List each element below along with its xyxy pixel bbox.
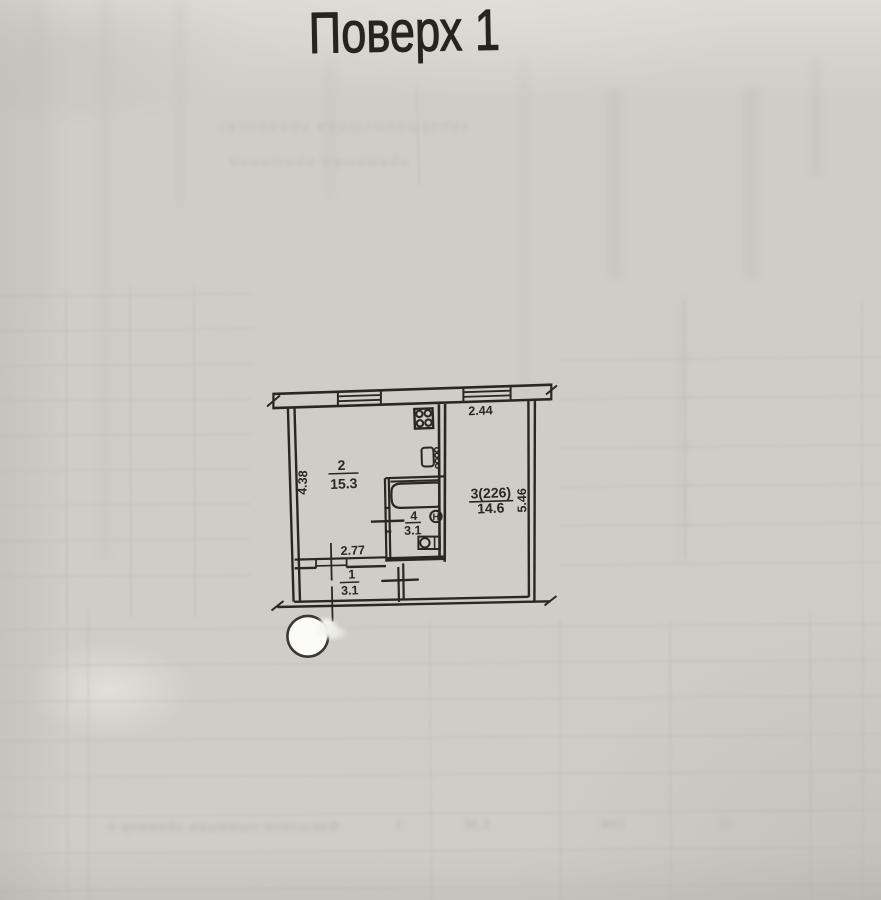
svg-text:3.1: 3.1 <box>404 523 422 538</box>
svg-text:1: 1 <box>348 567 355 581</box>
svg-text:ʁннəmʁdu ɐʞɯʁwʁdu: ʁннəmʁdu ɐʞɯʁwʁdu <box>230 153 411 170</box>
svg-text:H: H <box>432 512 439 523</box>
svg-text:3.1: 3.1 <box>341 583 359 598</box>
svg-text:15.3: 15.3 <box>330 475 358 492</box>
svg-text:2.77: 2.77 <box>340 543 365 558</box>
svg-text:жɐɔ: жɐɔ <box>600 815 624 831</box>
svg-text:3(226): 3(226) <box>470 484 511 501</box>
svg-text:ʚ qнəwʁdu ʁʞɯʁwɯо ɐнʚоɯʞɐФ: ʚ qнəwʁdu ʁʞɯʁwɯо ɐнʚоɯʞɐФ <box>108 818 340 834</box>
svg-text:4: 4 <box>410 509 417 523</box>
svg-text:ɔʁɔнəwʁdu ɐʞนɯɔนdəɯʞɐdɐx: ɔʁɔнəwʁdu ɐʞนɯɔนdəɯʞɐdɐx <box>218 118 471 135</box>
svg-text:5.46: 5.46 <box>515 488 529 512</box>
svg-text:2: 2 <box>337 457 346 473</box>
svg-text:2.44: 2.44 <box>468 403 493 418</box>
svg-text:4.38: 4.38 <box>295 470 310 495</box>
svg-text:11: 11 <box>718 814 733 830</box>
svg-text:Ɛ: Ɛ <box>396 817 404 833</box>
svg-text:36,1: 36,1 <box>462 816 491 833</box>
svg-text:14.6: 14.6 <box>477 500 505 517</box>
